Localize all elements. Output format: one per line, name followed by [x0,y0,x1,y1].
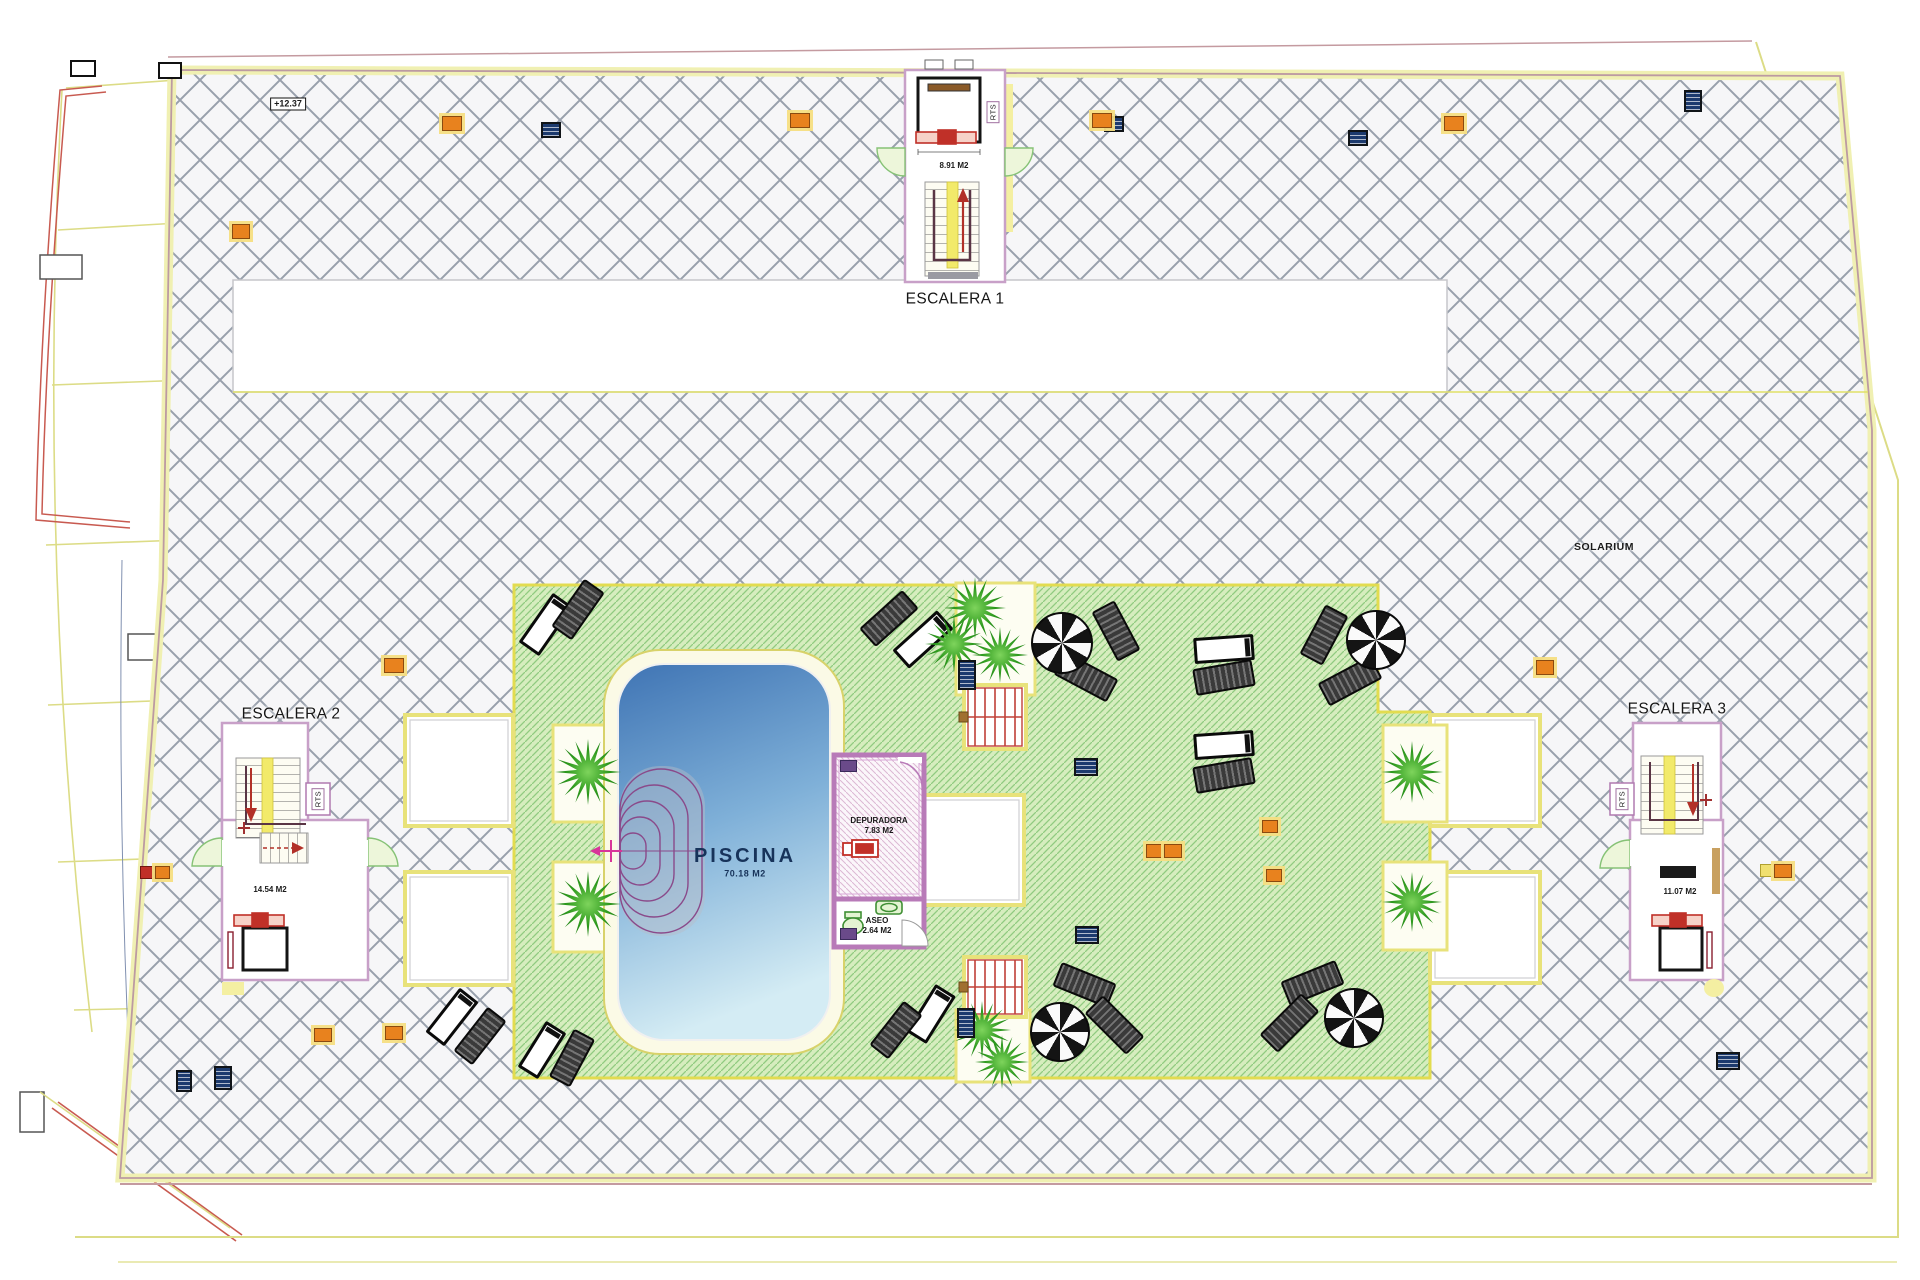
orange-marker [1444,116,1464,131]
orange-marker [1092,113,1112,128]
palm-tree-icon [1382,872,1442,932]
pergola-grid-top [959,685,1026,749]
orange-marker [1774,864,1792,878]
stair3-label: ESCALERA 3 [1628,701,1727,717]
blue-marker [1348,130,1368,146]
roof-void [233,280,1447,392]
purple-marker [840,760,857,772]
umbrella-icon [1324,988,1384,1048]
purple-marker [840,928,857,940]
palm-tree-icon [975,1035,1029,1089]
palm-tree-icon [555,871,621,937]
orange-marker [790,113,810,128]
orange-marker [384,658,404,673]
blue-marker [1075,926,1099,944]
blue-marker [176,1070,192,1092]
orange-marker [155,866,170,879]
blue-marker [541,122,561,138]
orange-marker [1262,820,1278,833]
orange-marker [1536,660,1554,675]
orange-marker [442,116,462,131]
palm-tree-icon [555,739,621,805]
solarium-label: SOLARIUM [1574,542,1634,553]
stair2-label: ESCALERA 2 [242,706,341,722]
aseo-label: ASEO [866,917,889,925]
red-marker [140,866,155,879]
orange-marker [1164,844,1182,858]
stair3-area-label: 11.07 M2 [1664,888,1697,896]
rts-tag-1: RTS [987,101,1000,123]
orange-marker [314,1028,332,1042]
cbox-marker [70,60,96,77]
pool-label: PISCINA [694,846,796,866]
palm-tree-icon [1381,741,1443,803]
elevator-3 [1660,928,1702,970]
yellow-marker [1760,864,1774,877]
orange-marker [1146,844,1164,858]
blue-marker [1684,90,1702,112]
aseo-area-label: 2.64 M2 [863,927,892,935]
blue-marker [214,1066,232,1090]
blue-marker [958,660,976,690]
stair1-label: ESCALERA 1 [906,291,1005,307]
room-tag [1660,866,1696,878]
elevation-marker: +12.37 [270,98,306,111]
depuradora-area-label: 7.83 M2 [865,827,894,835]
depuradora-label: DEPURADORA [850,817,907,825]
rts-tag-2: RTS [312,788,325,810]
orange-marker [1266,869,1282,882]
umbrella-icon [1346,610,1406,670]
umbrella-icon [1031,612,1093,674]
white-lounger-icon [1193,730,1255,760]
orange-marker [232,224,250,239]
blue-marker [1716,1052,1740,1070]
pump-icon [843,840,878,857]
blue-marker [1074,758,1098,776]
orange-marker [385,1026,403,1040]
umbrella-icon [1030,1002,1090,1062]
left-facade-red-trim [36,86,130,528]
pool-area-label: 70.18 M2 [724,870,766,879]
elevator-2 [243,928,287,970]
rts-tag-3: RTS [1616,788,1629,810]
palm-tree-icon [972,627,1028,683]
cbox-marker [158,62,182,79]
blue-marker [957,1008,975,1038]
stair2-area-label: 14.54 M2 [253,886,286,894]
rooftop-floor-plan: ESCALERA 1 ESCALERA 2 ESCALERA 3 SOLARIU… [0,0,1920,1280]
stair1-area-label: 8.91 M2 [940,162,969,170]
